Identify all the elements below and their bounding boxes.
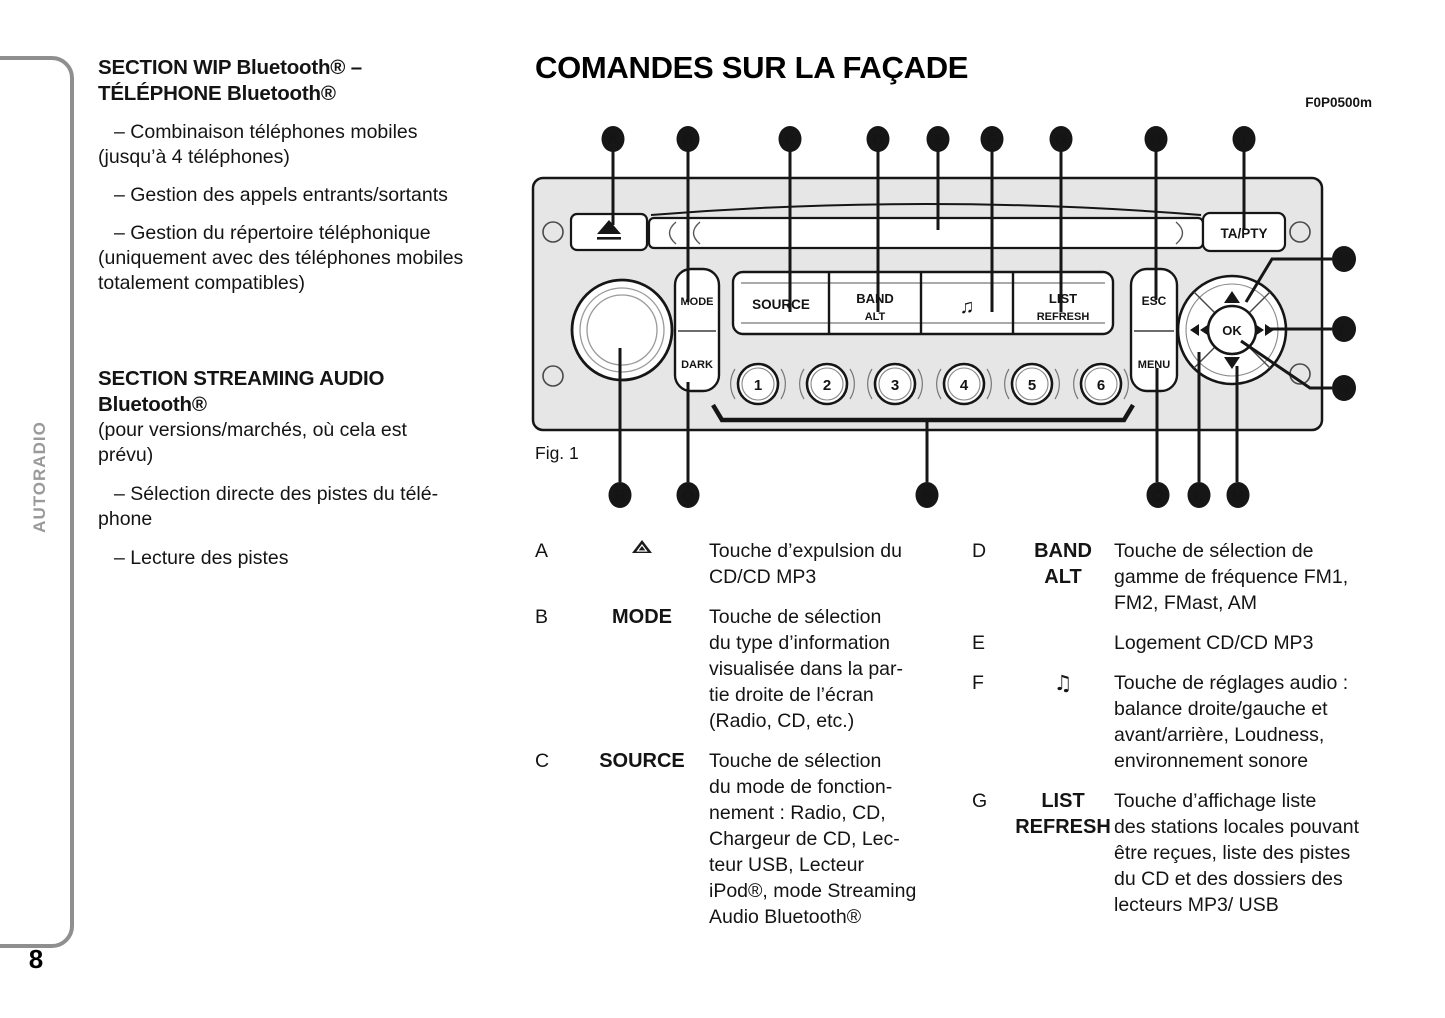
callout-a: A	[602, 126, 625, 152]
svg-text:L: L	[1339, 322, 1348, 339]
callout-m-right: M	[1332, 246, 1356, 272]
legend-description: Touche de sélection du type d’informatio…	[709, 604, 955, 734]
section-heading-streaming: SECTION STREAMING AUDIO Bluetooth®	[98, 366, 490, 418]
radio-diagram: TA/PTY MODE DARK SOURCE BAND ALT ♫ LIST …	[528, 118, 1378, 518]
intro-bullet: – Combinaison téléphones mobiles (jusqu’…	[98, 120, 490, 170]
ok-label: OK	[1222, 323, 1242, 338]
legend-letter: G	[972, 788, 1012, 814]
svg-text:O: O	[1152, 488, 1164, 505]
refresh-button-label: REFRESH	[1037, 311, 1090, 323]
legend-key: BAND ALT	[1012, 538, 1114, 590]
legend-row-c: C SOURCE Touche de sélection du mode de …	[535, 748, 955, 930]
callout-o: O	[1147, 482, 1170, 508]
eject-icon-bar	[597, 237, 621, 240]
svg-text:L: L	[1194, 488, 1203, 505]
legend-description: Touche d’expulsion du CD/CD MP3	[709, 538, 955, 590]
intro-bullet: – Gestion du répertoire téléphonique (un…	[98, 221, 490, 296]
svg-text:Q: Q	[682, 488, 694, 505]
screw-icon	[1290, 222, 1310, 242]
callout-h: H	[1145, 126, 1168, 152]
svg-text:R: R	[615, 488, 626, 505]
page-title: COMANDES SUR LA FAÇADE	[535, 50, 968, 86]
svg-text:P: P	[922, 488, 932, 505]
intro-column: SECTION WIP Bluetooth® – TÉLÉPHONE Bluet…	[98, 55, 490, 571]
figure-code: F0P0500m	[1240, 95, 1372, 110]
legend-key: SOURCE	[575, 748, 709, 774]
list-button-label: LIST	[1049, 291, 1077, 306]
svg-text:4: 4	[960, 377, 969, 394]
callout-n-right: N	[1332, 375, 1356, 401]
svg-text:1: 1	[754, 377, 762, 394]
legend-letter: B	[535, 604, 575, 630]
callout-c: C	[779, 126, 802, 152]
svg-text:M: M	[1232, 488, 1245, 505]
legend-right-column: D BAND ALT Touche de sélection de gamme …	[972, 538, 1374, 932]
legend-key	[575, 538, 709, 569]
svg-text:H: H	[1151, 132, 1162, 149]
menu-label: MENU	[1138, 359, 1170, 371]
legend-description: Touche d’affichage liste des stations lo…	[1114, 788, 1374, 918]
legend-letter: A	[535, 538, 575, 564]
alt-button-label: ALT	[865, 311, 886, 323]
callout-i: I	[1233, 126, 1256, 152]
callout-b: B	[677, 126, 700, 152]
esc-menu-button	[1131, 269, 1177, 391]
legend-row-b: B MODE Touche de sélection du type d’inf…	[535, 604, 955, 734]
section-subnote: (pour versions/marchés, où cela est prév…	[98, 418, 490, 468]
intro-bullet: – Lecture des pistes	[98, 546, 490, 571]
callout-e: E	[927, 126, 950, 152]
svg-text:2: 2	[823, 377, 831, 394]
legend-row-f: F ♫ Touche de réglages audio : balance d…	[972, 670, 1374, 774]
callout-q: Q	[677, 482, 700, 508]
svg-text:6: 6	[1097, 377, 1105, 394]
source-button-label: SOURCE	[752, 297, 810, 312]
svg-text:5: 5	[1028, 377, 1036, 394]
callout-l-right: L	[1332, 316, 1356, 342]
mode-label: MODE	[681, 296, 714, 308]
svg-text:C: C	[785, 132, 796, 149]
svg-text:B: B	[683, 132, 694, 149]
legend-key: MODE	[575, 604, 709, 630]
legend-letter: F	[972, 670, 1012, 696]
svg-text:N: N	[1339, 381, 1350, 398]
page-number: 8	[22, 944, 50, 975]
callout-l-bottom: L	[1188, 482, 1211, 508]
screw-icon	[543, 366, 563, 386]
svg-text:A: A	[608, 132, 619, 149]
eject-icon	[627, 538, 657, 562]
band-button-label: BAND	[856, 291, 894, 306]
svg-text:G: G	[1055, 132, 1067, 149]
callout-r: R	[609, 482, 632, 508]
callout-d: D	[867, 126, 890, 152]
svg-text:3: 3	[891, 377, 899, 394]
legend-description: Logement CD/CD MP3	[1114, 630, 1374, 656]
legend-row-g: G LIST REFRESH Touche d’affichage liste …	[972, 788, 1374, 918]
legend-letter: D	[972, 538, 1012, 564]
legend-description: Touche de sélection du mode de fonction-…	[709, 748, 955, 930]
legend-row-d: D BAND ALT Touche de sélection de gamme …	[972, 538, 1374, 616]
esc-label: ESC	[1142, 294, 1167, 308]
cd-slot	[649, 218, 1203, 248]
music-note-icon: ♫	[960, 296, 975, 318]
legend-letter: C	[535, 748, 575, 774]
mode-dark-button	[675, 269, 719, 391]
section-tab-label: AUTORADIO	[30, 397, 50, 557]
svg-text:E: E	[933, 132, 943, 149]
section-heading-wip: SECTION WIP Bluetooth® – TÉLÉPHONE Bluet…	[98, 55, 490, 107]
svg-text:I: I	[1242, 132, 1246, 149]
legend-description: Touche de sélection de gamme de fréquenc…	[1114, 538, 1374, 616]
callout-f: F	[981, 126, 1004, 152]
callout-m-bottom: M	[1227, 482, 1250, 508]
legend-key: LIST REFRESH	[1012, 788, 1114, 840]
dark-label: DARK	[681, 359, 713, 371]
legend-description: Touche de réglages audio : balance droit…	[1114, 670, 1374, 774]
callout-g: G	[1050, 126, 1073, 152]
legend-left-column: A Touche d’expulsion du CD/CD MP3 B MODE…	[535, 538, 955, 944]
svg-text:M: M	[1338, 252, 1351, 269]
svg-text:D: D	[873, 132, 884, 149]
legend-row-e: E Logement CD/CD MP3	[972, 630, 1374, 656]
callout-p: P	[916, 482, 939, 508]
svg-text:F: F	[987, 132, 996, 149]
intro-bullet: – Gestion des appels entrants/sortants	[98, 183, 490, 208]
legend-row-a: A Touche d’expulsion du CD/CD MP3	[535, 538, 955, 590]
intro-bullet: – Sélection directe des pistes du télé- …	[98, 482, 490, 532]
legend-letter: E	[972, 630, 1012, 656]
music-note-icon: ♫	[1012, 670, 1114, 696]
screw-icon	[543, 222, 563, 242]
